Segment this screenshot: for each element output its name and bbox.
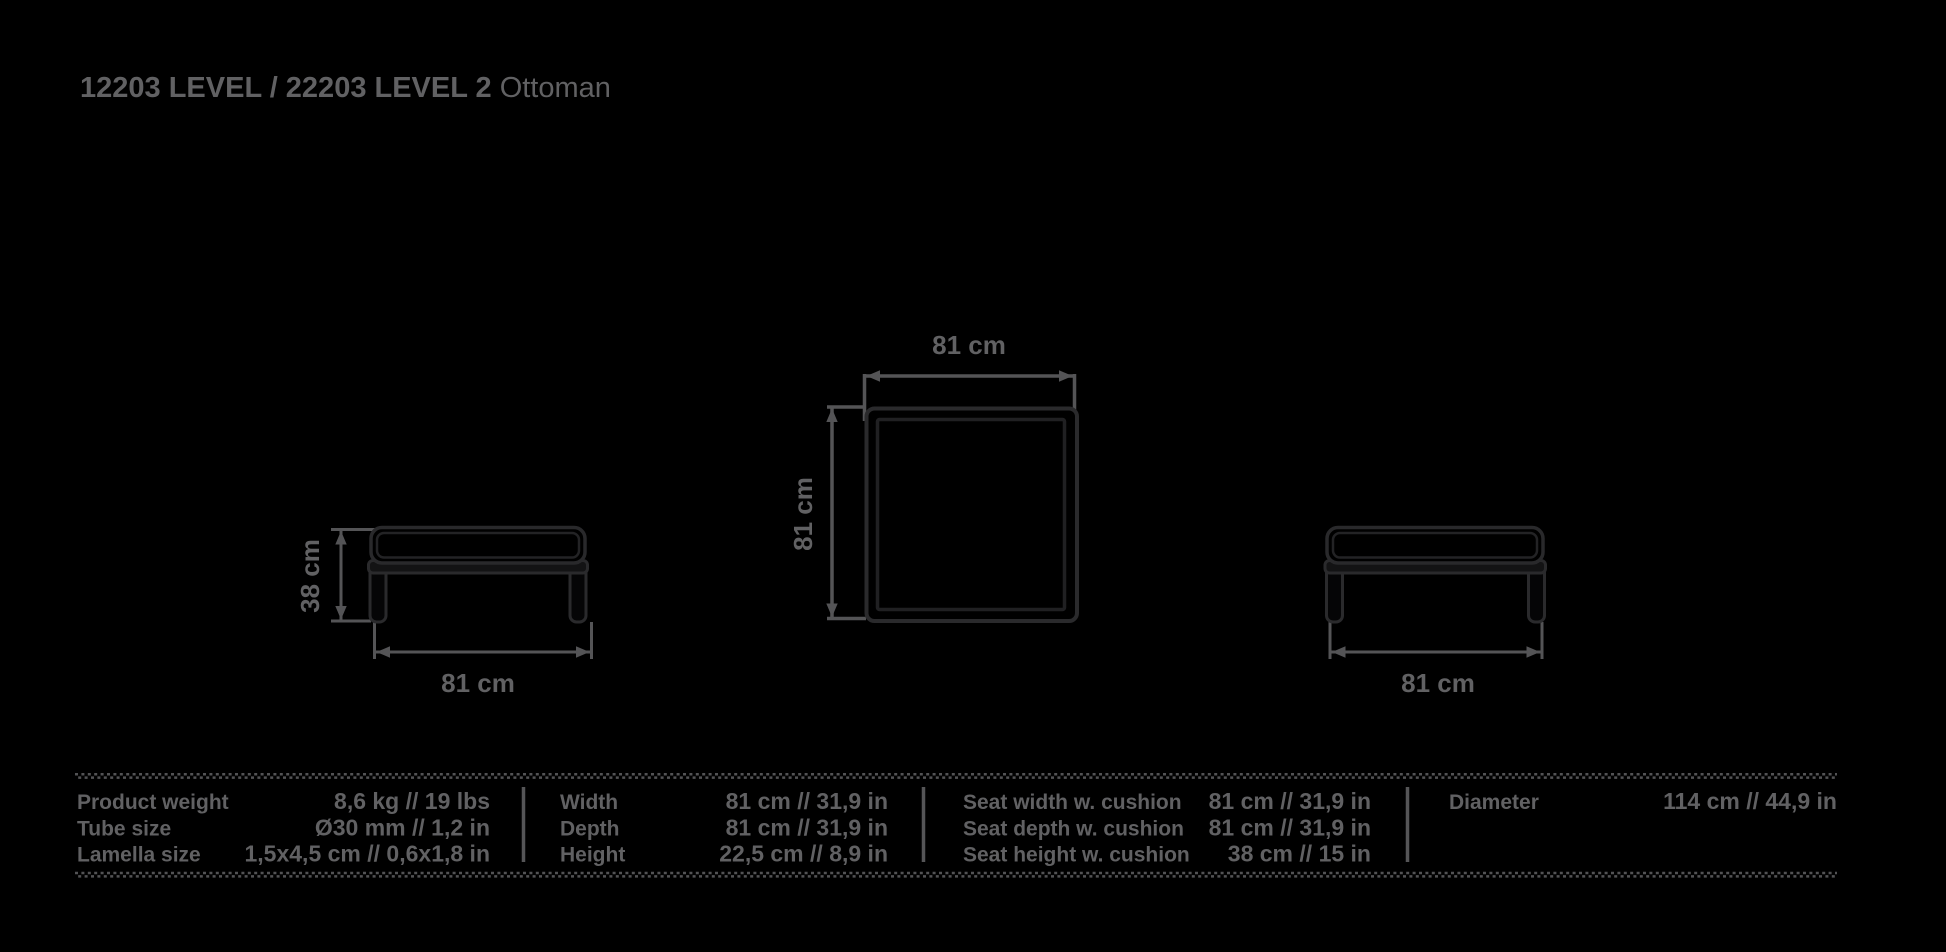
svg-text:81 cm // 31,9 in: 81 cm // 31,9 in [1209, 788, 1371, 814]
svg-text:Ø30 mm // 1,2 in: Ø30 mm // 1,2 in [315, 815, 490, 841]
svg-text:Tube size: Tube size [77, 818, 171, 841]
svg-text:Product weight: Product weight [77, 791, 229, 814]
svg-text:8,6 kg // 19 lbs: 8,6 kg // 19 lbs [334, 788, 490, 814]
svg-text:1,5x4,5 cm // 0,6x1,8 in: 1,5x4,5 cm // 0,6x1,8 in [245, 841, 491, 867]
svg-text:81 cm // 31,9 in: 81 cm // 31,9 in [726, 788, 888, 814]
svg-text:38 cm: 38 cm [295, 539, 325, 613]
svg-text:81 cm: 81 cm [932, 330, 1006, 360]
svg-text:22,5 cm // 8,9 in: 22,5 cm // 8,9 in [719, 841, 888, 867]
svg-text:Diameter: Diameter [1449, 791, 1539, 814]
svg-text:Height: Height [560, 844, 625, 867]
svg-text:Seat height w. cushion: Seat height w. cushion [963, 844, 1190, 867]
svg-text:Seat depth w. cushion: Seat depth w. cushion [963, 818, 1184, 841]
svg-text:Lamella size: Lamella size [77, 844, 201, 867]
svg-text:Seat width w. cushion: Seat width w. cushion [963, 791, 1182, 814]
svg-text:12203 LEVEL / 22203 LEVEL 2 Ot: 12203 LEVEL / 22203 LEVEL 2 Ottoman [80, 72, 611, 104]
svg-text:81 cm: 81 cm [441, 668, 515, 698]
svg-text:Depth: Depth [560, 818, 620, 841]
svg-text:114 cm // 44,9 in: 114 cm // 44,9 in [1663, 788, 1837, 814]
svg-text:81 cm // 31,9 in: 81 cm // 31,9 in [1209, 815, 1371, 841]
svg-text:81 cm: 81 cm [788, 477, 818, 551]
svg-text:38 cm // 15 in: 38 cm // 15 in [1228, 841, 1371, 867]
svg-text:Width: Width [560, 791, 618, 814]
svg-text:81 cm // 31,9 in: 81 cm // 31,9 in [726, 815, 888, 841]
svg-text:81 cm: 81 cm [1401, 668, 1475, 698]
